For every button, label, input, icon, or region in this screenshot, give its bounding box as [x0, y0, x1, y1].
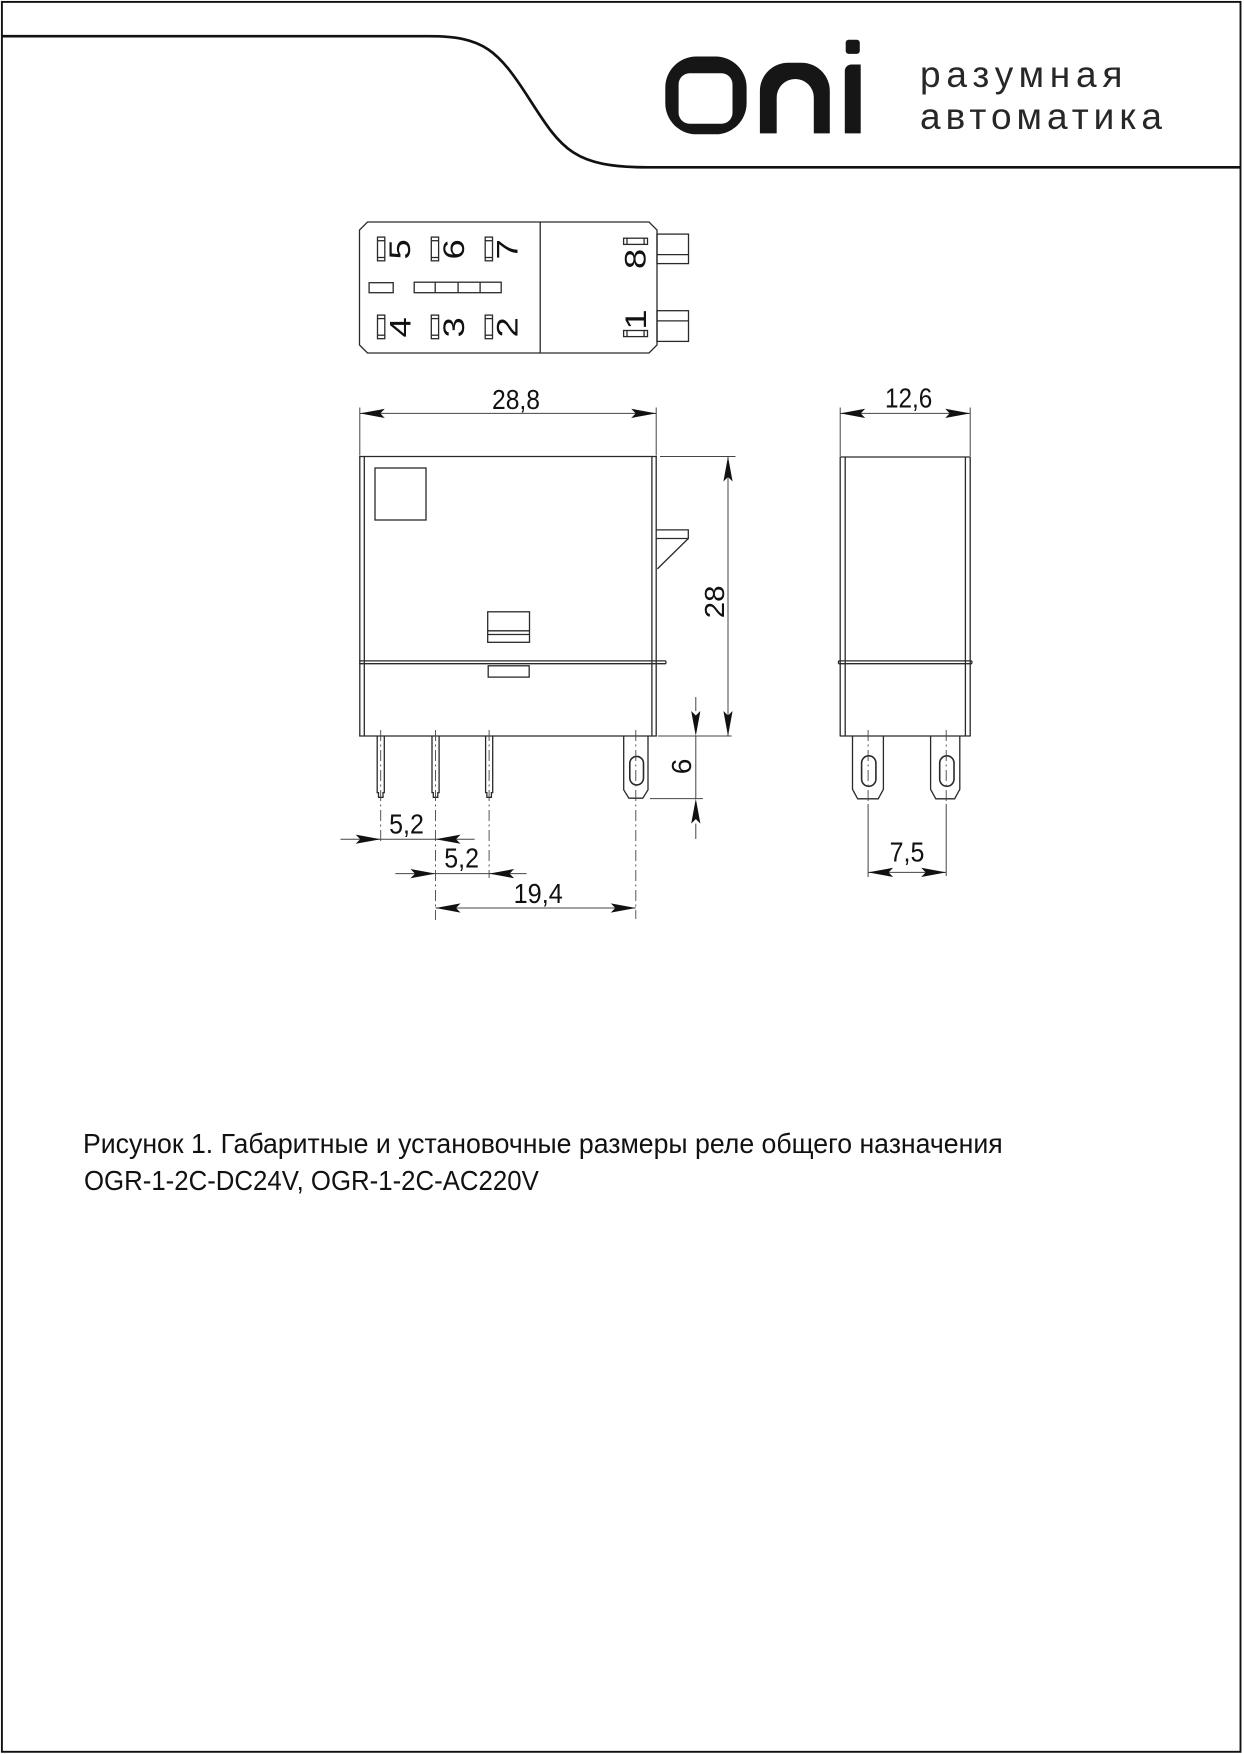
svg-text:28,8: 28,8 [492, 384, 540, 415]
svg-text:6: 6 [666, 759, 697, 775]
svg-text:28: 28 [699, 586, 730, 619]
svg-text:3: 3 [438, 317, 471, 337]
svg-text:7,5: 7,5 [890, 837, 925, 868]
svg-text:6: 6 [438, 239, 471, 259]
svg-text:4: 4 [384, 317, 417, 337]
svg-text:5,2: 5,2 [444, 843, 479, 874]
svg-text:8: 8 [620, 249, 653, 269]
svg-text:7: 7 [491, 239, 524, 259]
svg-text:1: 1 [620, 309, 653, 329]
svg-text:5: 5 [384, 239, 417, 259]
svg-text:2: 2 [491, 317, 524, 337]
svg-text:19,4: 19,4 [514, 878, 563, 909]
svg-text:12,6: 12,6 [885, 382, 932, 413]
svg-text:5,2: 5,2 [389, 808, 424, 839]
